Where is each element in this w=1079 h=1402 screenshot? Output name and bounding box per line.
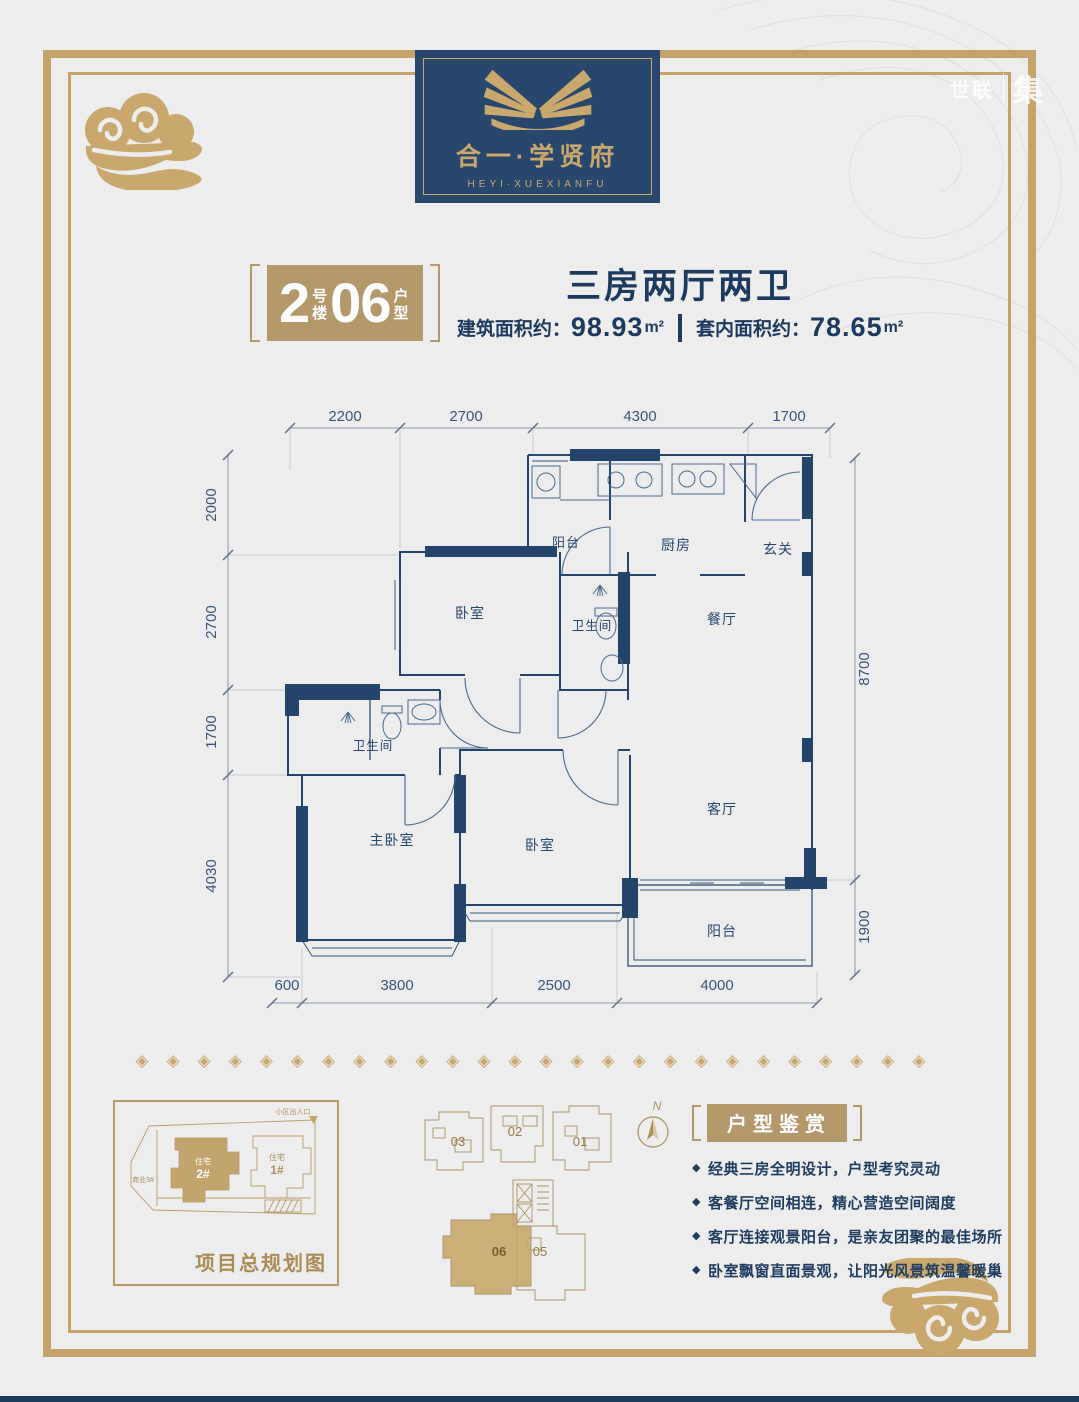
svg-text:2#: 2# xyxy=(196,1167,210,1181)
open-book-icon xyxy=(479,66,597,130)
svg-text:01: 01 xyxy=(573,1134,587,1149)
svg-text:住宅: 住宅 xyxy=(195,1156,211,1166)
diamond-bullet-icon: ◆ xyxy=(692,1260,701,1281)
brand-logo-plaque: 合一·学贤府 HEYI·XUEXIANFU xyxy=(415,50,660,203)
svg-text:1700: 1700 xyxy=(772,408,805,425)
appreciation-point: 经典三房全明设计，户型考究灵动 xyxy=(708,1158,941,1179)
list-item: ◆ 客餐厅空间相连，精心营造空间阔度 xyxy=(692,1192,1022,1213)
brand-subtitle: HEYI·XUEXIANFU xyxy=(415,179,660,190)
caption-char: 型 xyxy=(393,305,408,322)
inner-area-unit: m² xyxy=(884,319,904,337)
floor-plan: 2200 2700 4300 1700 2000 2700 1700 4030 … xyxy=(180,392,880,1032)
building-caption: 号 楼 xyxy=(312,288,327,323)
dimension-ticks xyxy=(223,423,860,1008)
svg-text:卫生间: 卫生间 xyxy=(572,619,613,633)
list-item: ◆ 卧室飘窗直面景观，让阳光风景筑温馨暖巢 xyxy=(692,1260,1022,1281)
svg-text:卧室: 卧室 xyxy=(525,837,555,853)
windows xyxy=(302,455,800,956)
cloud-ornament-top-left xyxy=(72,88,222,190)
svg-text:8700: 8700 xyxy=(856,652,873,685)
svg-text:2500: 2500 xyxy=(537,977,570,994)
extension-lines xyxy=(228,430,855,1003)
caption-char: 楼 xyxy=(312,305,327,322)
site-plan-drawing: 住宅 2# 住宅 1# 商业3# 小区出入口 xyxy=(115,1102,335,1242)
keyplan-unit-06-highlight xyxy=(443,1214,531,1294)
inner-area-label: 套内面积约： xyxy=(696,314,810,341)
svg-text:4000: 4000 xyxy=(700,977,733,994)
svg-text:餐厅: 餐厅 xyxy=(707,611,737,627)
svg-text:3800: 3800 xyxy=(380,977,413,994)
area-info-row: 建筑面积约： 98.93 m² 套内面积约： 78.65 m² xyxy=(420,312,940,343)
svg-text:厨房: 厨房 xyxy=(661,537,691,553)
site-plan-title: 项目总规划图 xyxy=(195,1247,327,1276)
svg-text:1900: 1900 xyxy=(856,910,873,943)
svg-text:2000: 2000 xyxy=(203,488,220,521)
site-plan-box: 住宅 2# 住宅 1# 商业3# 小区出入口 项目总规划图 xyxy=(113,1100,339,1286)
dimension-lines xyxy=(228,428,855,1003)
list-item: ◆ 经典三房全明设计，户型考究灵动 xyxy=(692,1158,1022,1179)
unit-caption: 户 型 xyxy=(393,288,408,323)
built-area-label: 建筑面积约： xyxy=(457,314,571,341)
appreciation-title: 户型鉴赏 xyxy=(707,1104,847,1142)
diamond-bullet-icon: ◆ xyxy=(692,1226,701,1247)
svg-text:2700: 2700 xyxy=(449,408,482,425)
bottom-navy-strip xyxy=(0,1396,1079,1402)
brand-title: 合一·学贤府 xyxy=(415,137,660,173)
floor-key-plan: 03 02 01 06 05 N xyxy=(395,1098,680,1323)
appreciation-point: 客厅连接观景阳台，是亲友团聚的最佳场所 xyxy=(708,1226,1003,1247)
built-area-unit: m² xyxy=(644,319,664,337)
appreciation-list: ◆ 经典三房全明设计，户型考究灵动 ◆ 客餐厅空间相连，精心营造空间阔度 ◆ 客… xyxy=(692,1158,1022,1281)
watermark-suffix: 集 xyxy=(1013,66,1043,110)
diamond-bullet-icon: ◆ xyxy=(692,1158,701,1179)
svg-text:住宅: 住宅 xyxy=(269,1152,285,1162)
svg-text:1700: 1700 xyxy=(203,715,220,748)
svg-text:2200: 2200 xyxy=(328,408,361,425)
svg-text:600: 600 xyxy=(274,977,299,994)
inner-area-value: 78.65 xyxy=(810,312,883,343)
wall-piers xyxy=(285,449,827,942)
layout-appreciation: 户型鉴赏 ◆ 经典三房全明设计，户型考究灵动 ◆ 客餐厅空间相连，精心营造空间阔… xyxy=(692,1104,1022,1294)
svg-text:4300: 4300 xyxy=(623,408,656,425)
area-divider-bar xyxy=(678,314,682,342)
fixtures xyxy=(341,464,756,739)
svg-text:主卧室: 主卧室 xyxy=(370,832,415,848)
appreciation-point: 客餐厅空间相连，精心营造空间阔度 xyxy=(708,1192,956,1213)
ornament-divider: ◈◈◈◈◈◈◈◈◈◈◈◈◈◈◈◈◈◈◈◈◈◈◈◈◈◈ xyxy=(0,1051,1079,1071)
watermark-name: 世联 xyxy=(950,74,994,103)
svg-text:卧室: 卧室 xyxy=(455,605,485,621)
svg-text:4030: 4030 xyxy=(203,859,220,892)
svg-text:商业3#: 商业3# xyxy=(132,1175,154,1184)
poster-page: { "watermark": {"name1": "世联", "name2": … xyxy=(0,0,1079,1402)
watermark: 世联 集 xyxy=(950,66,1043,110)
walls xyxy=(288,455,812,966)
svg-text:03: 03 xyxy=(451,1134,465,1149)
svg-text:阳台: 阳台 xyxy=(552,535,580,550)
list-item: ◆ 客厅连接观景阳台，是亲友团聚的最佳场所 xyxy=(692,1226,1022,1247)
svg-text:小区出入口: 小区出入口 xyxy=(276,1107,311,1116)
badge-body: 2 号 楼 06 户 型 xyxy=(267,265,423,341)
built-area-value: 98.93 xyxy=(571,312,644,343)
svg-text:卫生间: 卫生间 xyxy=(353,739,394,753)
svg-text:2700: 2700 xyxy=(203,605,220,638)
diamond-bullet-icon: ◆ xyxy=(692,1192,701,1213)
appreciation-point: 卧室飘窗直面景观，让阳光风景筑温馨暖巢 xyxy=(708,1260,1003,1281)
caption-char: 号 xyxy=(312,288,327,305)
svg-text:06: 06 xyxy=(492,1244,506,1259)
doors xyxy=(405,472,800,825)
svg-text:1#: 1# xyxy=(270,1163,284,1177)
header-bracket-left xyxy=(692,1105,701,1141)
appreciation-header-row: 户型鉴赏 xyxy=(692,1104,1022,1142)
unit-badge: 2 号 楼 06 户 型 xyxy=(250,264,440,342)
svg-text:05: 05 xyxy=(533,1244,547,1259)
svg-text:阳台: 阳台 xyxy=(707,923,737,939)
watermark-divider xyxy=(1003,73,1004,103)
room-labels: 阳台 厨房 玄关 卧室 卫生间 餐厅 卫生间 主卧室 卧室 客厅 阳台 xyxy=(353,535,793,939)
svg-text:玄关: 玄关 xyxy=(763,541,793,557)
badge-bracket-left xyxy=(250,264,260,342)
svg-text:02: 02 xyxy=(508,1124,522,1139)
svg-text:客厅: 客厅 xyxy=(707,801,737,817)
building-number: 2 xyxy=(279,275,309,331)
compass-north-label: N xyxy=(653,1099,662,1113)
unit-number: 06 xyxy=(330,275,390,331)
caption-char: 户 xyxy=(393,288,408,305)
layout-title: 三房两厅两卫 xyxy=(470,258,890,309)
compass: N xyxy=(638,1099,668,1147)
header-bracket-right xyxy=(853,1105,862,1141)
